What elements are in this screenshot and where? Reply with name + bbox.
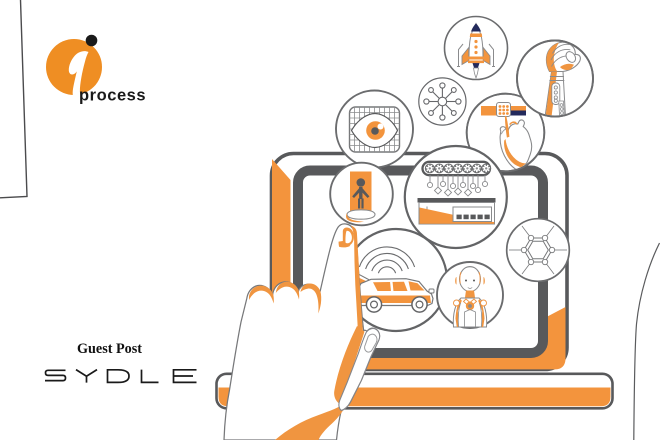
svg-text:process: process	[79, 87, 146, 105]
svg-text:Guest Post: Guest Post	[77, 341, 142, 357]
